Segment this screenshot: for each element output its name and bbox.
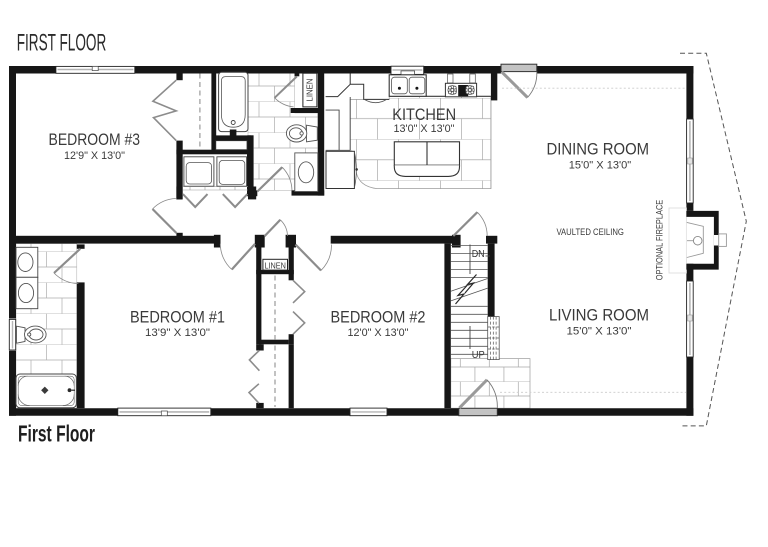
svg-text:BEDROOM #3: BEDROOM #3 — [49, 131, 141, 149]
svg-text:LIVING ROOM: LIVING ROOM — [549, 307, 649, 325]
svg-text:LINEN: LINEN — [264, 260, 286, 270]
svg-text:First Floor: First Floor — [18, 421, 95, 447]
svg-text:DINING ROOM: DINING ROOM — [547, 141, 650, 159]
svg-text:BEDROOM #2: BEDROOM #2 — [331, 309, 426, 327]
svg-text:BEDROOM #1: BEDROOM #1 — [130, 309, 225, 327]
svg-text:12'9" X 13'0": 12'9" X 13'0" — [64, 150, 125, 162]
svg-text:KITCHEN: KITCHEN — [392, 106, 456, 124]
svg-text:UP: UP — [472, 350, 485, 361]
svg-text:FIRST FLOOR: FIRST FLOOR — [17, 30, 106, 57]
svg-text:15'0" X 13'0": 15'0" X 13'0" — [569, 160, 632, 172]
svg-text:OPTIONAL FIREPLACE: OPTIONAL FIREPLACE — [655, 200, 665, 281]
svg-text:VAULTED CEILING: VAULTED CEILING — [556, 227, 624, 238]
svg-text:DN: DN — [472, 249, 485, 260]
svg-text:LINEN: LINEN — [306, 78, 315, 101]
svg-text:15'0" X 13'0": 15'0" X 13'0" — [567, 326, 632, 338]
svg-text:13'9" X 13'0": 13'9" X 13'0" — [145, 327, 210, 339]
svg-text:13'0" X 13'0": 13'0" X 13'0" — [394, 123, 455, 135]
svg-text:12'0" X 13'0": 12'0" X 13'0" — [348, 327, 409, 339]
